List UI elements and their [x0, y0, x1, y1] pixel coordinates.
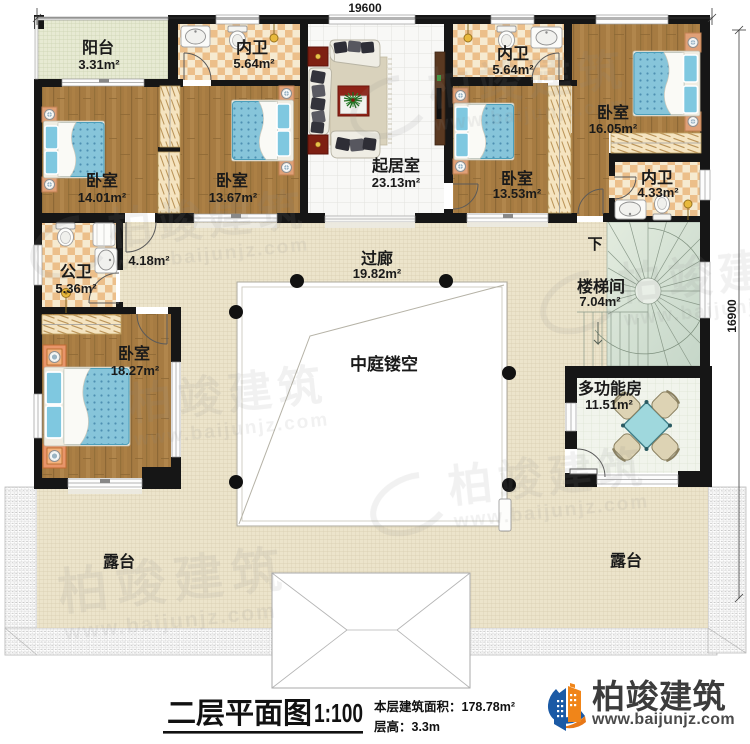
svg-text:卧室: 卧室	[118, 344, 150, 363]
svg-text:露台: 露台	[103, 552, 135, 571]
svg-text:1:100: 1:100	[314, 698, 363, 728]
svg-text:公卫: 公卫	[60, 263, 92, 281]
svg-text:13.67m²: 13.67m²	[209, 190, 258, 205]
svg-text:露台: 露台	[610, 551, 642, 570]
svg-text:二层平面图: 二层平面图	[167, 698, 312, 730]
svg-text:卧室: 卧室	[86, 171, 118, 190]
svg-text:卧室: 卧室	[216, 171, 248, 190]
svg-text:内卫: 内卫	[497, 44, 529, 63]
svg-text:18.27m²: 18.27m²	[111, 363, 160, 378]
svg-text:卧室: 卧室	[597, 103, 629, 122]
svg-text:层高：3.3m: 层高：3.3m	[374, 719, 440, 734]
svg-text:14.01m²: 14.01m²	[78, 190, 127, 205]
svg-text:4.18m²: 4.18m²	[128, 253, 170, 268]
svg-text:3.31m²: 3.31m²	[78, 57, 120, 72]
svg-text:19600: 19600	[348, 1, 382, 15]
svg-text:起居室: 起居室	[371, 156, 420, 175]
svg-text:5.36m²: 5.36m²	[55, 281, 97, 296]
svg-text:本层建筑面积：178.78m²: 本层建筑面积：178.78m²	[374, 699, 515, 714]
svg-text:阳台: 阳台	[82, 38, 114, 57]
svg-text:16900: 16900	[725, 299, 739, 333]
svg-text:11.51m²: 11.51m²	[585, 397, 633, 412]
svg-text:16.05m²: 16.05m²	[589, 121, 638, 136]
svg-text:5.64m²: 5.64m²	[233, 56, 275, 71]
svg-text:23.13m²: 23.13m²	[372, 175, 421, 190]
svg-text:柏竣建筑: 柏竣建筑	[592, 678, 726, 715]
svg-text:7.04m²: 7.04m²	[579, 294, 621, 309]
svg-text:5.64m²: 5.64m²	[492, 62, 534, 77]
svg-text:中庭镂空: 中庭镂空	[350, 354, 418, 374]
svg-text:内卫: 内卫	[236, 38, 268, 57]
svg-text:4.33m²: 4.33m²	[637, 185, 679, 200]
svg-text:下: 下	[587, 236, 602, 253]
svg-text:www.baijunjz.com: www.baijunjz.com	[591, 711, 735, 728]
svg-text:19.82m²: 19.82m²	[353, 266, 402, 281]
svg-text:多功能房: 多功能房	[578, 379, 642, 398]
svg-text:13.53m²: 13.53m²	[493, 186, 542, 201]
